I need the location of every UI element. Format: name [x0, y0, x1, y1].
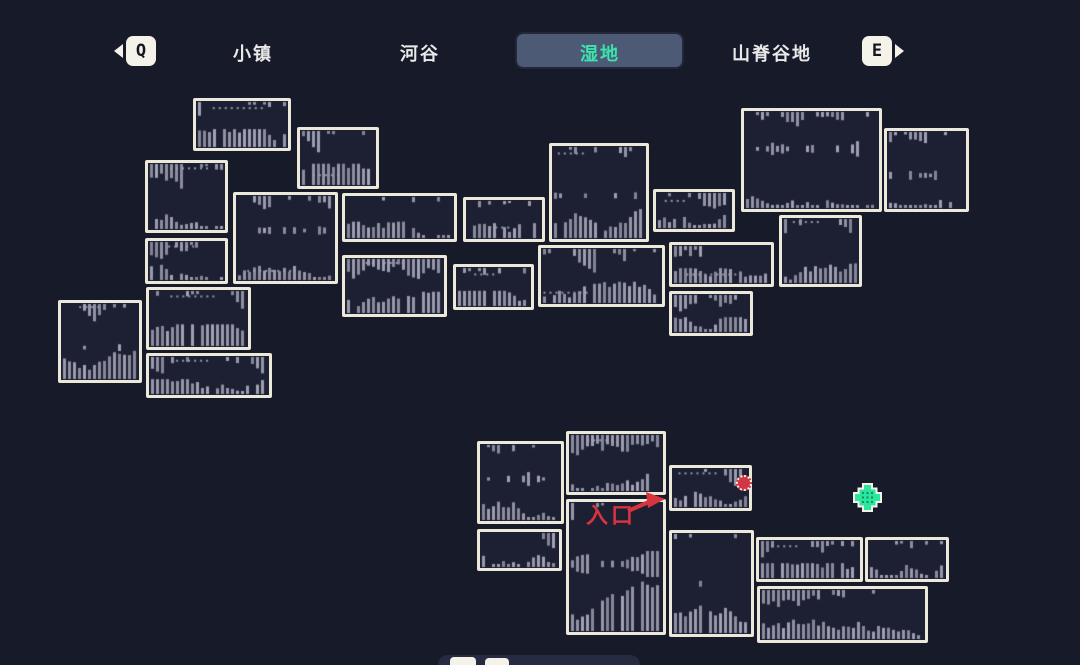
map-room	[58, 300, 142, 383]
arrow-left-icon	[114, 44, 123, 58]
tab-town[interactable]: 小镇	[233, 40, 273, 66]
map-room	[342, 193, 457, 242]
map-room	[145, 160, 228, 233]
map-room	[463, 197, 545, 242]
arrow-right-icon	[895, 44, 904, 58]
tab-wetland[interactable]: 湿地	[580, 40, 620, 66]
next-area-button[interactable]: E	[862, 36, 904, 66]
hint-keycap-icon	[450, 657, 476, 665]
map-room	[653, 189, 735, 232]
hint-keycap-icon	[485, 658, 509, 665]
player-marker	[736, 475, 752, 491]
map-room	[453, 264, 534, 310]
tab-ridge-valley[interactable]: 山脊谷地	[732, 40, 812, 66]
map-room	[757, 586, 928, 643]
entrance-arrow-icon	[624, 488, 668, 516]
map-room	[477, 529, 562, 571]
map-room	[884, 128, 969, 212]
map-room	[669, 530, 754, 637]
map-room	[193, 98, 291, 151]
e-keycap-icon: E	[862, 36, 892, 66]
map-room	[297, 127, 379, 189]
map-room	[146, 353, 272, 398]
game-map-screen: Q 小镇 河谷 湿地 山脊谷地 E 入口	[0, 0, 1080, 665]
map-room	[865, 537, 949, 582]
bottom-hint-bar	[438, 655, 640, 665]
map-room	[342, 255, 447, 317]
map-room	[756, 537, 863, 582]
map-room	[741, 108, 882, 212]
map-room	[146, 287, 251, 350]
map-room	[669, 242, 774, 287]
map-room	[566, 431, 666, 495]
tab-river-valley[interactable]: 河谷	[400, 40, 440, 66]
objective-marker-icon	[853, 483, 882, 512]
prev-area-button[interactable]: Q	[114, 36, 156, 66]
map-room	[145, 238, 228, 284]
q-keycap-icon: Q	[126, 36, 156, 66]
map-room	[233, 192, 338, 284]
map-room	[477, 441, 564, 524]
map-room	[549, 143, 649, 242]
map-room	[779, 215, 862, 287]
map-room	[669, 291, 753, 336]
map-room	[538, 245, 665, 307]
